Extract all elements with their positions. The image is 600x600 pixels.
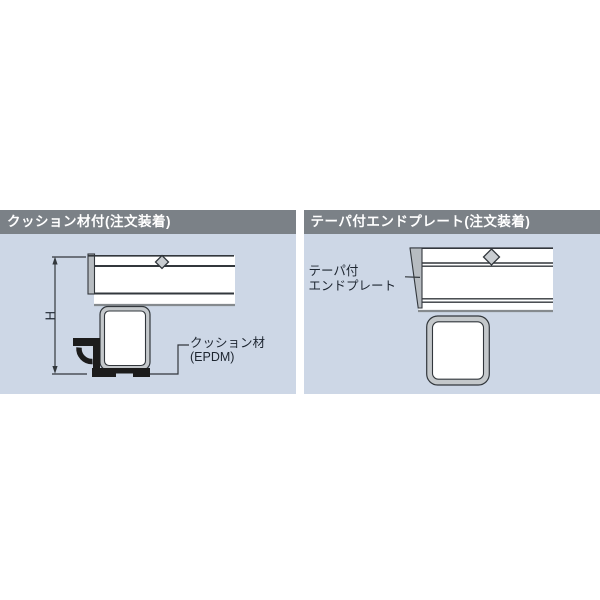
panel-cushion-option: クッション材付(注文装着) [0, 210, 296, 394]
taper-callout-line2: エンドプレート [309, 279, 397, 294]
taper-leader-line [405, 277, 420, 278]
tube-inner-wall [105, 311, 146, 366]
panel-taper-title: テーパ付エンドプレート(注文装着) [304, 210, 600, 234]
square-tube [100, 307, 150, 371]
cushion-arm [73, 338, 100, 370]
page-background: { "panels": { "cushion": { "title": "クッシ… [0, 0, 600, 600]
deck-beam-cross-section [410, 248, 553, 311]
dimension-label-h: H [43, 311, 57, 320]
beam-end-cap [88, 254, 95, 294]
tapered-end-plate [410, 248, 422, 308]
dimension-arrow-down [52, 366, 57, 374]
panel-taper-option: テーパ付エンドプレート(注文装着) [304, 210, 600, 394]
taper-callout-line1: テーパ付 [309, 264, 397, 279]
panel-cushion-drawing: H クッション材 (EPDM) [0, 234, 296, 394]
square-tube [426, 316, 489, 385]
panel-taper-drawing: テーパ付 エンドプレート [304, 234, 600, 394]
panel-cushion-title: クッション材付(注文装着) [0, 210, 296, 234]
cushion-leader-line [150, 345, 189, 374]
tube-inner-wall [432, 322, 483, 379]
taper-diagram-canvas [304, 234, 600, 394]
cushion-base [92, 368, 150, 377]
cushion-hook [79, 348, 93, 362]
cushion-callout-line1: クッション材 [190, 337, 265, 351]
taper-callout: テーパ付 エンドプレート [309, 264, 397, 294]
cushion-callout: クッション材 (EPDM) [190, 337, 265, 364]
deck-beam-cross-section [88, 254, 235, 305]
cushion-callout-line2: (EPDM) [190, 351, 265, 365]
dimension-arrow-up [52, 257, 57, 265]
